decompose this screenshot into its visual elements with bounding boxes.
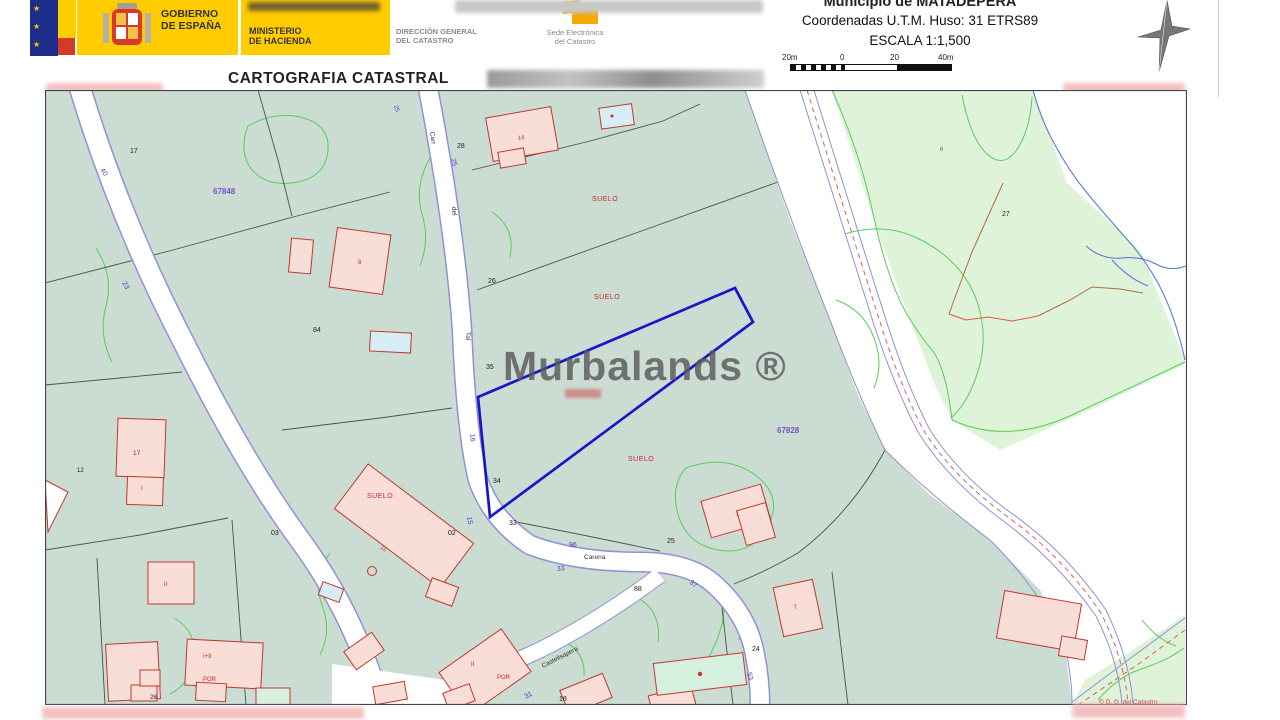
building-label: II bbox=[471, 662, 475, 668]
pool-mark bbox=[698, 672, 702, 676]
page-edge-line bbox=[1218, 0, 1219, 97]
blurred-box-pink-bottom-right bbox=[1072, 704, 1185, 718]
blurred-text-top bbox=[455, 0, 763, 13]
ministerio-line1: MINISTERIO bbox=[249, 26, 312, 36]
street-name: Carena bbox=[584, 554, 606, 561]
masa-label: 67848 bbox=[213, 187, 236, 196]
municipio-title: Municipio de MATADEPERA bbox=[780, 0, 1060, 11]
gobierno-line2: DE ESPAÑA bbox=[161, 20, 221, 32]
map-label: 17 bbox=[130, 148, 138, 155]
suelo-label: SUELO bbox=[592, 196, 618, 203]
parcel-ref-blurred bbox=[565, 389, 601, 398]
road-number: 96 bbox=[569, 542, 577, 549]
map-label: 35 bbox=[486, 364, 494, 371]
building-label: POR bbox=[497, 675, 511, 681]
watermark: Murbalands ® bbox=[503, 343, 787, 389]
pool-mark bbox=[611, 115, 614, 118]
building-label: 17 bbox=[133, 450, 141, 457]
map-label: 33 bbox=[509, 520, 517, 527]
building bbox=[1058, 636, 1087, 660]
map-label: 28 bbox=[457, 143, 465, 150]
blurred-text-reference bbox=[487, 70, 764, 88]
building bbox=[196, 682, 227, 702]
scale-bar: 20m 0 20 40m bbox=[786, 53, 966, 75]
road-number: 33 bbox=[557, 565, 565, 573]
scale-tick-label: 0 bbox=[840, 53, 844, 62]
building-label: POR bbox=[203, 677, 217, 683]
scale-tick-label: 40m bbox=[938, 53, 954, 62]
map-label: 84 bbox=[313, 327, 321, 334]
map-label: 18 bbox=[559, 696, 567, 703]
map-label: 24 bbox=[752, 646, 760, 653]
sede-electronica-label: Sede Electrónica del Catastro bbox=[530, 28, 620, 46]
scale-tick-label: 20m bbox=[782, 53, 798, 62]
building bbox=[185, 639, 263, 689]
direccion-general-label: DIRECCIÓN GENERAL DEL CATASTRO bbox=[396, 27, 477, 45]
scale-label: ESCALA 1:1,500 bbox=[780, 33, 1060, 48]
building bbox=[116, 418, 166, 478]
building-label: II bbox=[164, 582, 168, 588]
cadastral-map-page: { "header": { "gobierno_line1": "GOBIERN… bbox=[0, 0, 1280, 720]
utm-coordinates-label: Coordenadas U.T.M. Huso: 31 ETRS89 bbox=[780, 13, 1060, 28]
spain-flag-red bbox=[58, 38, 75, 55]
gobierno-line1: GOBIERNO bbox=[161, 8, 221, 20]
logo-divider bbox=[238, 0, 241, 55]
suelo-label: SUELO bbox=[628, 456, 654, 463]
scale-bar-checkered bbox=[790, 64, 844, 71]
building bbox=[127, 476, 164, 505]
map-label: 02 bbox=[448, 530, 456, 537]
page-title: CARTOGRAFIA CATASTRAL bbox=[228, 70, 449, 88]
map-label: 12 bbox=[77, 468, 84, 474]
map-label: 26 bbox=[488, 278, 496, 285]
coat-of-arms-icon bbox=[99, 3, 155, 53]
pool bbox=[599, 104, 635, 129]
scale-tick-label: 20 bbox=[890, 53, 899, 62]
ministerio-line2: DE HACIENDA bbox=[249, 36, 312, 46]
map-label: 03 bbox=[271, 530, 279, 537]
spain-flag-yellow bbox=[58, 0, 76, 38]
map-label: 25 bbox=[667, 538, 675, 545]
map-svg: 1784282635343302032524182788122864023252… bbox=[45, 90, 1187, 705]
compass-rose-icon bbox=[1128, 0, 1198, 80]
road-number: 16 bbox=[468, 434, 476, 442]
map-label: 88 bbox=[634, 586, 642, 593]
street-name: Tal bbox=[464, 332, 471, 341]
building bbox=[148, 562, 194, 604]
building bbox=[289, 238, 314, 274]
street-name: del bbox=[450, 207, 458, 217]
pool bbox=[370, 331, 412, 353]
suelo-label: SUELO bbox=[594, 294, 620, 301]
scale-bar-black bbox=[898, 64, 952, 71]
building bbox=[140, 670, 160, 686]
blurred-box-pink-bottom-left bbox=[42, 707, 364, 719]
masa-label: 67828 bbox=[777, 426, 800, 435]
scale-bar-white bbox=[844, 64, 898, 71]
suelo-label: SUELO bbox=[367, 493, 393, 500]
road-number: 15 bbox=[465, 516, 473, 525]
eu-flag-icon: ★★★ bbox=[30, 0, 58, 56]
map-label: 34 bbox=[493, 478, 501, 485]
pool-green bbox=[256, 688, 290, 705]
map-label: 27 bbox=[1002, 211, 1010, 218]
map-label: 28 bbox=[150, 695, 157, 701]
building-label: I+II bbox=[203, 654, 212, 660]
blurred-text-ministry bbox=[248, 2, 380, 11]
